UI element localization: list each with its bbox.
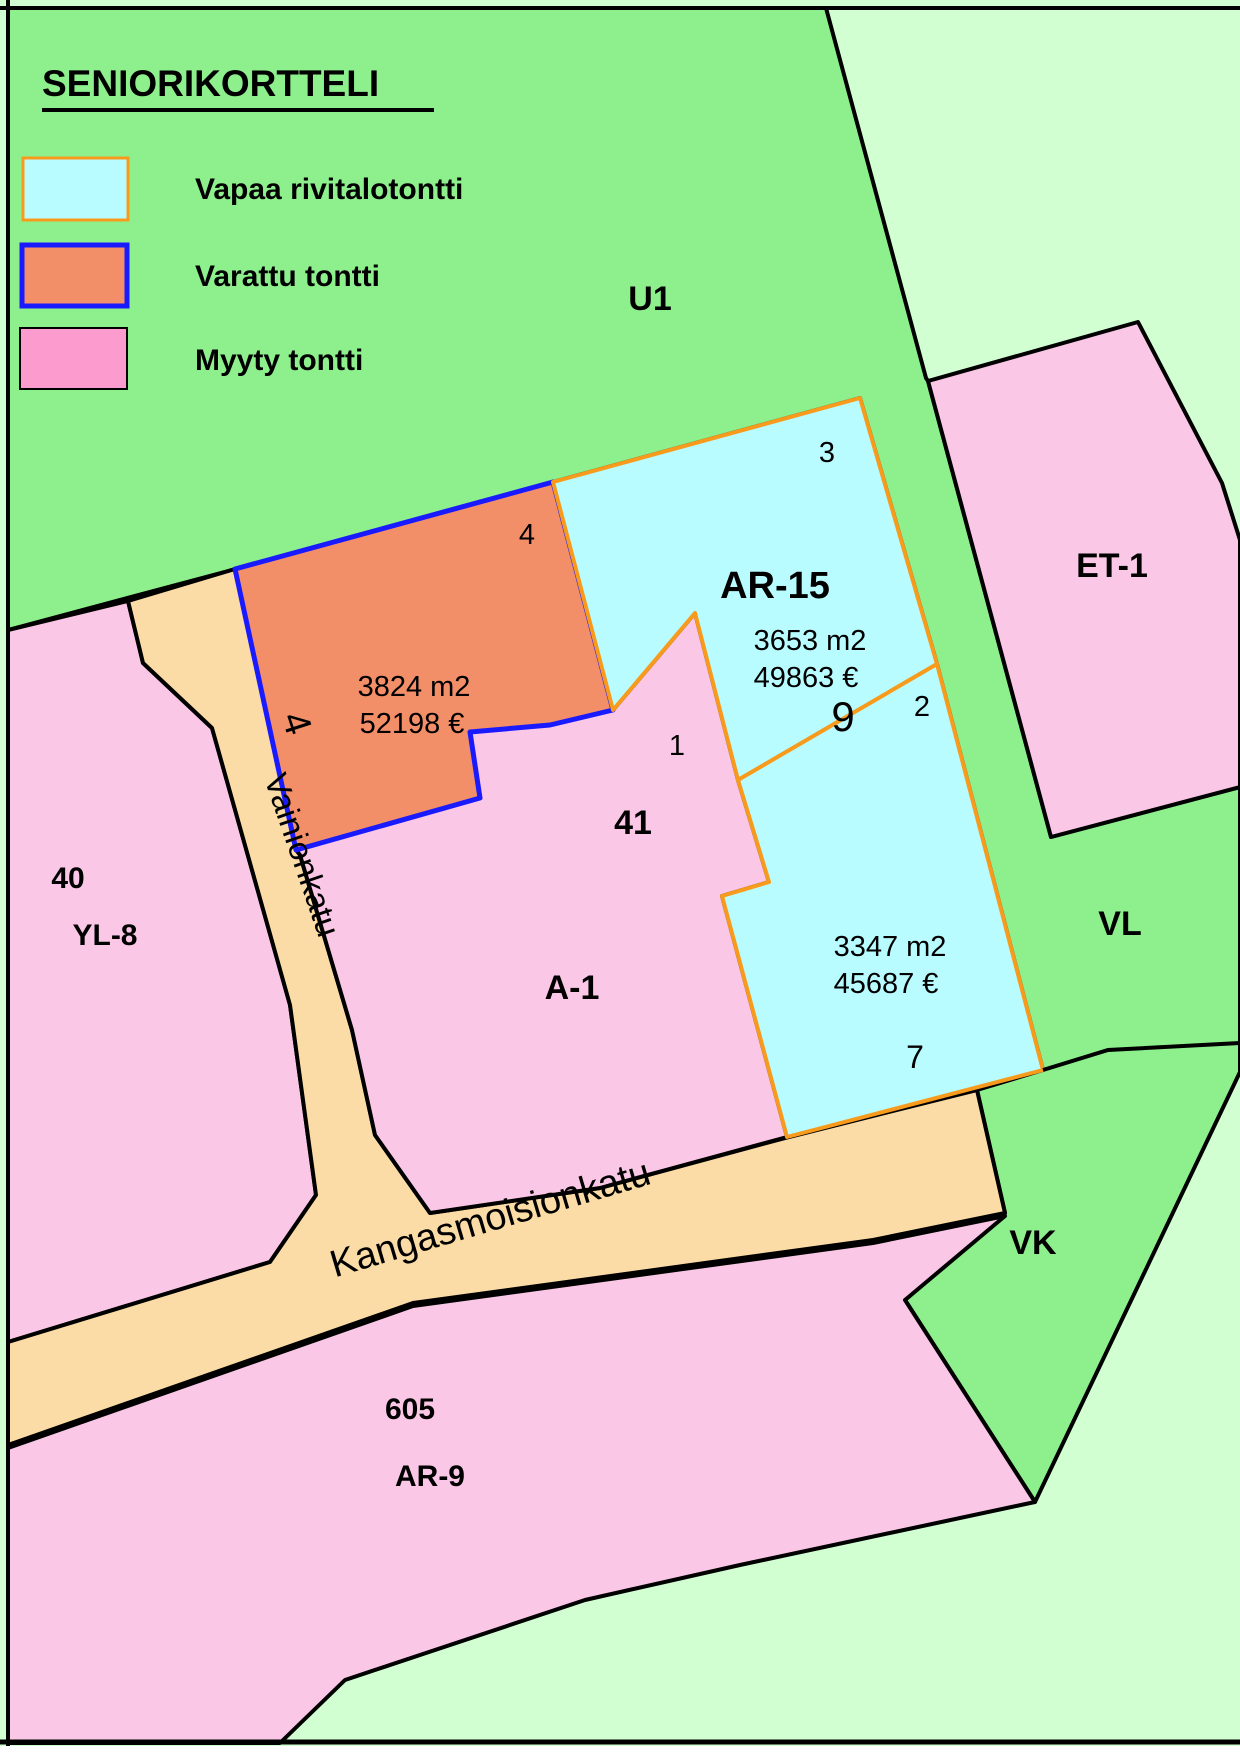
label-u1: U1 — [628, 280, 671, 318]
label-ar15-area: 3653 m2 — [754, 625, 867, 657]
label-block605: 605 — [385, 1393, 435, 1426]
label-plot3-number: 3 — [819, 437, 835, 469]
label-block41-number: 41 — [614, 804, 652, 842]
label-plot4-price: 52198 € — [360, 708, 465, 740]
label-yl8: YL-8 — [72, 919, 137, 952]
label-plot1-number: 1 — [669, 730, 685, 762]
zoning-map-page: SENIORIKORTTELI Vapaa rivitalotontti Var… — [0, 0, 1240, 1754]
bottom-white-margin — [0, 1746, 1240, 1754]
label-plot2-price: 45687 € — [834, 968, 939, 1000]
label-ar15-zone: AR-15 — [720, 565, 830, 607]
label-plot4-number: 4 — [519, 519, 535, 551]
zoning-map: SENIORIKORTTELI Vapaa rivitalotontti Var… — [0, 0, 1240, 1754]
label-block41-zone: A-1 — [545, 969, 600, 1007]
label-plot2-area: 3347 m2 — [834, 931, 947, 963]
legend-label-free-plot: Vapaa rivitalotontti — [195, 173, 463, 206]
label-plot2-address: 7 — [906, 1039, 924, 1075]
legend-label-reserved-plot: Varattu tontti — [195, 260, 380, 293]
label-plot4-area: 3824 m2 — [358, 671, 471, 703]
label-plot2-number: 2 — [914, 691, 930, 723]
legend-swatch-reserved-plot — [22, 245, 127, 306]
label-ar15-price: 49863 € — [754, 662, 859, 694]
label-ar9: AR-9 — [395, 1460, 465, 1493]
label-block40: 40 — [51, 862, 84, 895]
legend-swatch-sold-plot — [20, 328, 127, 389]
label-vl: VL — [1098, 905, 1141, 943]
legend-title: SENIORIKORTTELI — [42, 63, 379, 104]
label-et1: ET-1 — [1076, 547, 1148, 585]
label-vk: VK — [1009, 1224, 1057, 1262]
legend-label-sold-plot: Myyty tontti — [195, 344, 363, 377]
legend-swatch-free-plot — [23, 158, 128, 220]
label-ar15-block-number: 9 — [831, 693, 854, 740]
